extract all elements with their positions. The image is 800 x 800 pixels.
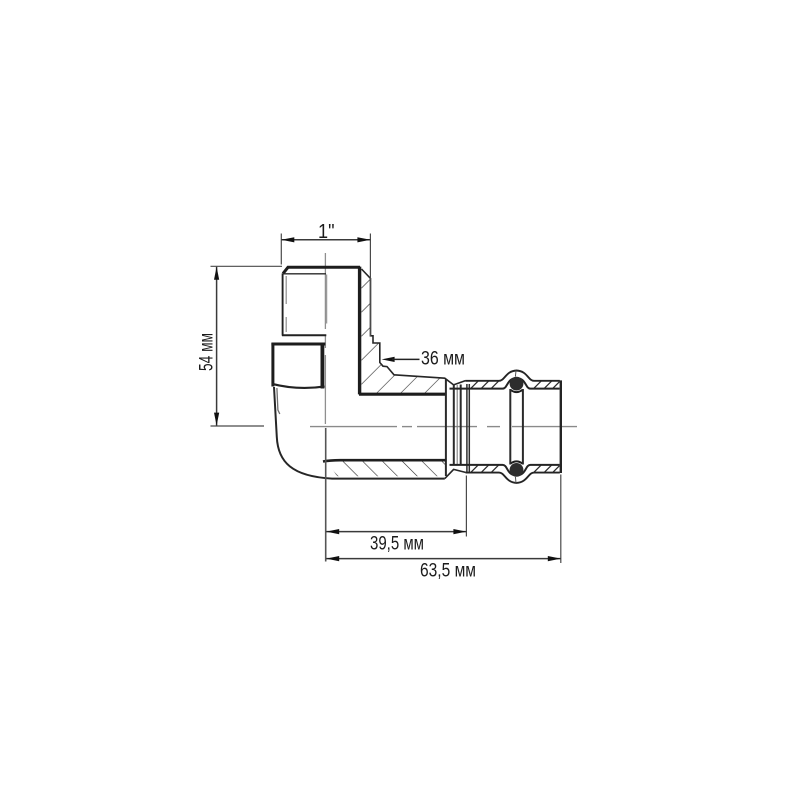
svg-text:36 мм: 36 мм bbox=[421, 349, 465, 370]
svg-text:63,5 мм: 63,5 мм bbox=[420, 561, 476, 582]
svg-text:54 мм: 54 мм bbox=[197, 333, 218, 371]
svg-text:39,5 мм: 39,5 мм bbox=[370, 534, 424, 555]
svg-text:1": 1" bbox=[318, 221, 335, 243]
